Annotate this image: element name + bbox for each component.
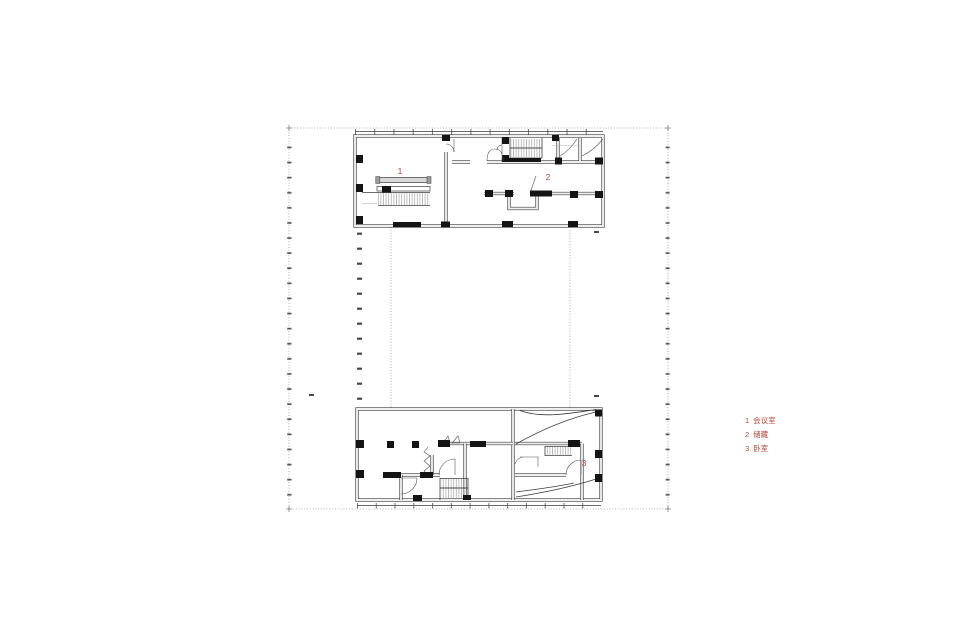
courtyard-dashed-lines <box>391 227 570 408</box>
stair-hatch <box>546 447 571 456</box>
legend-number: 3 <box>745 442 749 456</box>
room3-area <box>515 410 596 498</box>
top-building: 1 2 <box>355 135 603 228</box>
door-leaf <box>530 176 536 193</box>
legend-label: 卧室 <box>753 442 768 456</box>
room-label-2: 2 <box>546 172 551 182</box>
top-right-rooms <box>552 139 603 156</box>
meeting-room-furniture <box>362 177 431 206</box>
site-ticks-left <box>287 140 292 503</box>
site-ticks-right <box>666 140 671 503</box>
floor-plan-drawing: 1 2 <box>0 0 960 639</box>
corner-mark <box>286 506 292 512</box>
stair-hatch <box>378 193 430 205</box>
legend-label: 储藏 <box>753 428 768 442</box>
room-label-1: 1 <box>398 166 403 176</box>
legend-label: 会议室 <box>753 414 776 428</box>
legend-item: 2储藏 <box>745 428 776 442</box>
site-boundary <box>286 125 671 512</box>
legend-number: 2 <box>745 428 749 442</box>
legend-number: 1 <box>745 414 749 428</box>
corner-mark <box>665 125 671 131</box>
legend-item: 1会议室 <box>745 414 776 428</box>
corner-mark <box>665 506 671 512</box>
bottom-building: 3 <box>356 409 602 501</box>
double-door <box>487 149 503 161</box>
legend-item: 3卧室 <box>745 442 776 456</box>
corner-mark <box>286 125 292 131</box>
folding-door <box>424 447 430 475</box>
room-label-3: 3 <box>582 458 587 468</box>
courtyard-column-marks <box>356 229 362 401</box>
floor-plan-canvas: 1 2 <box>0 0 960 639</box>
legend: 1会议室 2储藏 3卧室 <box>745 414 776 456</box>
